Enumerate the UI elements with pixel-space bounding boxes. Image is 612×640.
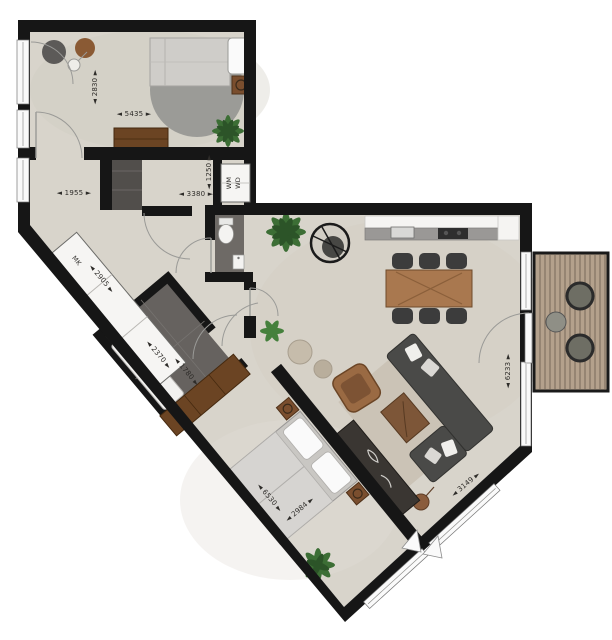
pouf: [288, 340, 312, 364]
dim-2830: ◄ 2830 ►: [91, 69, 99, 104]
dim-1955: ◄ 1955 ►: [57, 189, 92, 197]
plant: [212, 115, 244, 147]
wall: [100, 147, 112, 210]
cooktop: [438, 228, 468, 239]
toilet-tank: [219, 218, 233, 225]
dim-1250: ◄ 1250 ►: [205, 154, 213, 189]
balcony-chair: [567, 335, 593, 361]
pouf: [314, 360, 332, 378]
kitchen-counter: [365, 228, 498, 240]
wc-faucet: [237, 257, 239, 259]
dining-chair: [446, 253, 467, 269]
dining-chair: [392, 308, 413, 324]
egg-chair: [311, 224, 349, 262]
kitchen-sink: [391, 227, 414, 238]
balcony-table: [546, 312, 566, 332]
floorplan-page: ◄ 2830 ► ◄ 5435 ► ◄ 1955 ► ◄ 3380 ► ◄ 12…: [0, 0, 612, 640]
balcony-door-leaf: [525, 313, 532, 363]
closet: [112, 152, 142, 210]
label-wm: WM: [225, 177, 233, 189]
wall-wc-top: [205, 205, 253, 215]
side-table: [75, 38, 95, 58]
burner: [457, 231, 461, 235]
dining-chair: [419, 253, 440, 269]
balcony-chair: [567, 283, 593, 309]
dining-chair: [446, 308, 467, 324]
dining-chair: [419, 308, 440, 324]
toilet-bowl: [219, 225, 234, 244]
wall-wc-left: [205, 215, 215, 240]
dim-6233: ◄ 6233 ►: [504, 353, 512, 388]
dining-set: [386, 253, 472, 324]
dining-chair: [392, 253, 413, 269]
dim-3380: ◄ 3380 ►: [179, 190, 214, 198]
balcony: [534, 253, 608, 391]
label-wd: WD: [234, 177, 242, 189]
pouf: [42, 40, 66, 64]
wall-wc-bottom: [205, 272, 253, 282]
plant: [266, 212, 306, 252]
wall: [142, 206, 192, 216]
burner: [444, 231, 448, 235]
wall: [30, 147, 36, 160]
kitchen-tall-cabinet: [498, 216, 519, 240]
wall: [244, 316, 256, 338]
floorplan-canvas: ◄ 2830 ► ◄ 5435 ► ◄ 1955 ► ◄ 3380 ► ◄ 12…: [0, 0, 612, 640]
dim-5435: ◄ 5435 ►: [117, 110, 152, 118]
